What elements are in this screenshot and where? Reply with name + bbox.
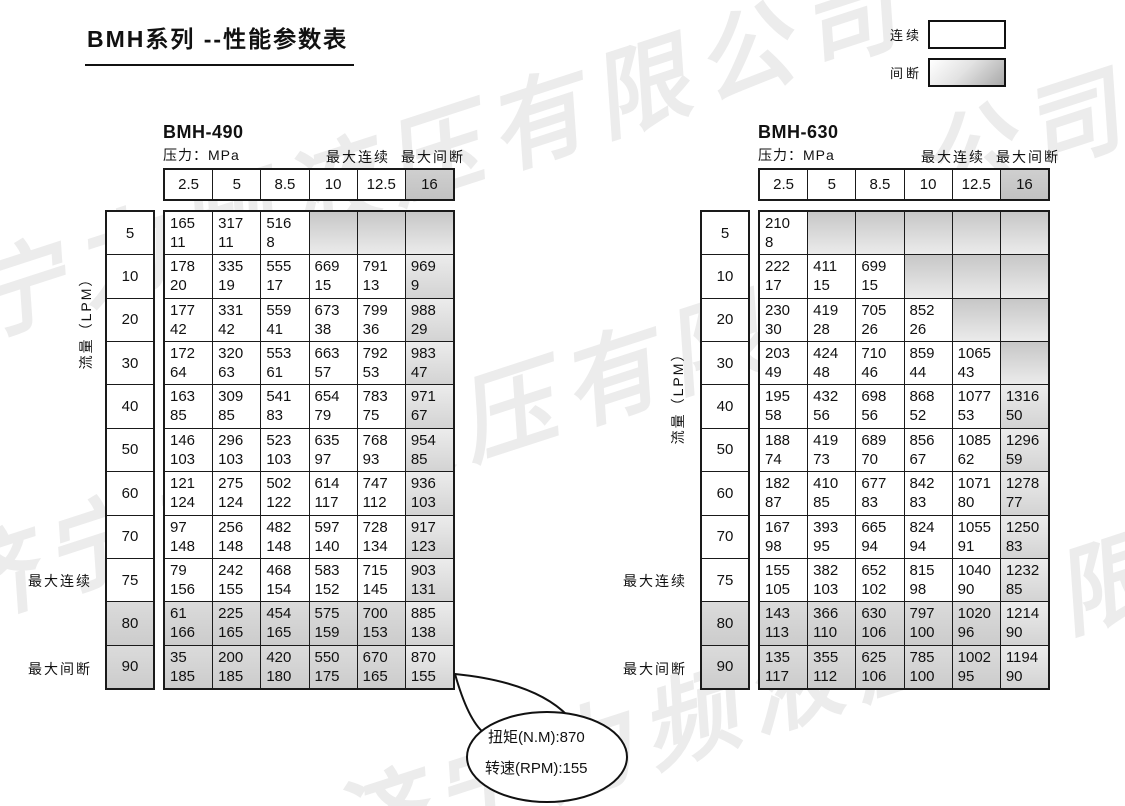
cell-BMH-490-10lpm-10mpa: 66915: [310, 255, 357, 297]
cell-BMH-630-30lpm-12.5mpa: 106543: [953, 342, 1000, 384]
cell-BMH-490-40lpm-16mpa: 97167: [406, 385, 453, 427]
torque-value: 988: [411, 301, 453, 320]
speed-value: 70: [861, 450, 903, 469]
speed-value: 100: [910, 623, 952, 642]
cell-BMH-630-40lpm-10mpa: 86852: [905, 385, 952, 427]
speed-value: 85: [170, 406, 212, 425]
torque-value: 859: [910, 344, 952, 363]
speed-value: 106: [861, 623, 903, 642]
torque-value: 785: [910, 648, 952, 667]
legend-continuous-label: 连续: [890, 25, 928, 44]
torque-value: 1071: [958, 474, 1000, 493]
cell-BMH-630-30lpm-5mpa: 42448: [808, 342, 855, 384]
cell-BMH-630-80lpm-16mpa: 121490: [1001, 602, 1048, 644]
torque-value: 1055: [958, 518, 1000, 537]
legend-continuous-swatch: [928, 20, 1006, 49]
speed-value: 145: [363, 580, 405, 599]
cell-BMH-630-5lpm-12.5mpa: [953, 212, 1000, 254]
torque-value: 583: [315, 561, 357, 580]
torque-value: 1296: [1006, 431, 1048, 450]
cell-BMH-490-50lpm-5mpa: 296103: [213, 429, 260, 471]
torque-value: 121: [170, 474, 212, 493]
cell-BMH-490-70lpm-16mpa: 917123: [406, 516, 453, 558]
cell-BMH-630-10lpm-2.5mpa: 22217: [760, 255, 807, 297]
cell-BMH-490-5lpm-8.5mpa: 5168: [261, 212, 308, 254]
speed-value: 103: [218, 450, 260, 469]
callout-speed-text: 转速(RPM):155: [485, 757, 588, 778]
torque-value: 167: [765, 518, 807, 537]
speed-value: 44: [910, 363, 952, 382]
speed-value: 166: [170, 623, 212, 642]
speed-value: 47: [411, 363, 453, 382]
cell-BMH-490-90lpm-8.5mpa: 420180: [261, 646, 308, 688]
speed-value: 50: [1006, 406, 1048, 425]
speed-value: 79: [315, 406, 357, 425]
torque-value: 1065: [958, 344, 1000, 363]
torque-value: 225: [218, 604, 260, 623]
cell-BMH-630-10lpm-8.5mpa: 69915: [856, 255, 903, 297]
speed-value: 83: [861, 493, 903, 512]
cell-BMH-490-80lpm-2.5mpa: 61166: [165, 602, 212, 644]
torque-value: 155: [765, 561, 807, 580]
torque-value: 172: [170, 344, 212, 363]
cell-BMH-630-60lpm-10mpa: 84283: [905, 472, 952, 514]
cell-BMH-490-80lpm-16mpa: 885138: [406, 602, 453, 644]
cell-BMH-490-60lpm-10mpa: 614117: [310, 472, 357, 514]
speed-value: 175: [315, 667, 357, 686]
torque-value: 555: [266, 257, 308, 276]
speed-value: 148: [170, 537, 212, 556]
torque-value: 516: [266, 214, 308, 233]
torque-value: 177: [170, 301, 212, 320]
torque-value: 61: [170, 604, 212, 623]
torque-value: 747: [363, 474, 405, 493]
speed-value: 93: [363, 450, 405, 469]
speed-value: 98: [765, 537, 807, 556]
torque-value: 468: [266, 561, 308, 580]
pressure-header-16: 16: [406, 170, 453, 199]
flow-column: 510203040506070758090: [700, 210, 750, 690]
cell-BMH-490-5lpm-2.5mpa: 16511: [165, 212, 212, 254]
speed-value: 17: [266, 276, 308, 295]
speed-value: 28: [813, 320, 855, 339]
speed-value: 152: [315, 580, 357, 599]
cell-BMH-630-90lpm-16mpa: 119490: [1001, 646, 1048, 688]
torque-value: 559: [266, 301, 308, 320]
cell-BMH-490-70lpm-12.5mpa: 728134: [358, 516, 405, 558]
cell-BMH-490-20lpm-5mpa: 33142: [213, 299, 260, 341]
cell-BMH-490-5lpm-12.5mpa: [358, 212, 405, 254]
cell-BMH-630-60lpm-2.5mpa: 18287: [760, 472, 807, 514]
speed-value: 91: [958, 537, 1000, 556]
cell-BMH-490-90lpm-2.5mpa: 35185: [165, 646, 212, 688]
cell-BMH-490-75lpm-16mpa: 903131: [406, 559, 453, 601]
cell-BMH-490-50lpm-12.5mpa: 76893: [358, 429, 405, 471]
torque-value: 917: [411, 518, 453, 537]
speed-value: 58: [765, 406, 807, 425]
cell-BMH-490-75lpm-10mpa: 583152: [310, 559, 357, 601]
pressure-header-8.5: 8.5: [856, 170, 903, 199]
speed-value: 90: [1006, 667, 1048, 686]
table-bmh-630: BMH-630 压力：MPa 最大连续 最大间断 2.558.51012.516…: [700, 122, 1120, 697]
cell-BMH-630-10lpm-12.5mpa: [953, 255, 1000, 297]
flow-header-70: 70: [702, 516, 748, 558]
torque-value: 143: [765, 604, 807, 623]
cell-BMH-490-80lpm-5mpa: 225165: [213, 602, 260, 644]
flow-header-40: 40: [702, 385, 748, 427]
speed-value: 95: [813, 537, 855, 556]
cell-BMH-490-30lpm-2.5mpa: 17264: [165, 342, 212, 384]
cell-BMH-490-60lpm-12.5mpa: 747112: [358, 472, 405, 514]
speed-value: 56: [813, 406, 855, 425]
speed-value: 95: [958, 667, 1000, 686]
legend-intermittent-swatch: [928, 58, 1006, 87]
flow-column: 510203040506070758090: [105, 210, 155, 690]
torque-value: 200: [218, 648, 260, 667]
max-intermittent-column-label: 最大间断: [996, 147, 1060, 167]
torque-value: 705: [861, 301, 903, 320]
cell-BMH-490-30lpm-16mpa: 98347: [406, 342, 453, 384]
torque-value: 792: [363, 344, 405, 363]
speed-value: 113: [765, 623, 807, 642]
pressure-header-row: 2.558.51012.516: [758, 168, 1050, 201]
torque-value: 783: [363, 387, 405, 406]
cell-BMH-630-20lpm-12.5mpa: [953, 299, 1000, 341]
torque-value: 222: [765, 257, 807, 276]
flow-header-90: 90: [107, 646, 153, 688]
pressure-header-8.5: 8.5: [261, 170, 308, 199]
max-continuous-column-label: 最大连续: [326, 147, 390, 167]
cell-BMH-490-50lpm-8.5mpa: 523103: [261, 429, 308, 471]
flow-header-5: 5: [107, 212, 153, 254]
speed-value: 73: [813, 450, 855, 469]
speed-value: 138: [411, 623, 453, 642]
torque-value: 203: [765, 344, 807, 363]
cell-BMH-630-10lpm-16mpa: [1001, 255, 1048, 297]
cell-BMH-490-5lpm-10mpa: [310, 212, 357, 254]
torque-value: 482: [266, 518, 308, 537]
speed-value: 98: [910, 580, 952, 599]
speed-value: 96: [958, 623, 1000, 642]
speed-value: 29: [411, 320, 453, 339]
cell-BMH-630-20lpm-5mpa: 41928: [808, 299, 855, 341]
speed-value: 49: [765, 363, 807, 382]
cell-BMH-490-70lpm-8.5mpa: 482148: [261, 516, 308, 558]
speed-value: 159: [315, 623, 357, 642]
pressure-header-10: 10: [310, 170, 357, 199]
flow-header-75: 75: [702, 559, 748, 601]
torque-value: 165: [170, 214, 212, 233]
speed-value: 102: [861, 580, 903, 599]
cell-BMH-630-5lpm-16mpa: [1001, 212, 1048, 254]
torque-value: 799: [363, 301, 405, 320]
cell-BMH-490-75lpm-2.5mpa: 79156: [165, 559, 212, 601]
cell-BMH-490-10lpm-2.5mpa: 17820: [165, 255, 212, 297]
cell-BMH-630-40lpm-8.5mpa: 69856: [856, 385, 903, 427]
torque-value: 1278: [1006, 474, 1048, 493]
speed-value: 26: [910, 320, 952, 339]
cell-BMH-490-80lpm-10mpa: 575159: [310, 602, 357, 644]
speed-value: 148: [266, 537, 308, 556]
torque-value: 230: [765, 301, 807, 320]
cell-BMH-630-75lpm-12.5mpa: 104090: [953, 559, 1000, 601]
cell-BMH-630-60lpm-12.5mpa: 107180: [953, 472, 1000, 514]
torque-value: 673: [315, 301, 357, 320]
speed-value: 41: [266, 320, 308, 339]
torque-value: 971: [411, 387, 453, 406]
speed-value: 124: [218, 493, 260, 512]
flow-header-75: 75: [107, 559, 153, 601]
torque-value: 1194: [1006, 648, 1048, 667]
cell-BMH-490-60lpm-16mpa: 936103: [406, 472, 453, 514]
cell-BMH-490-70lpm-2.5mpa: 97148: [165, 516, 212, 558]
cell-BMH-630-60lpm-5mpa: 41085: [808, 472, 855, 514]
speed-value: 43: [958, 363, 1000, 382]
cell-BMH-630-90lpm-12.5mpa: 100295: [953, 646, 1000, 688]
cell-BMH-630-40lpm-12.5mpa: 107753: [953, 385, 1000, 427]
torque-value: 625: [861, 648, 903, 667]
torque-value: 824: [910, 518, 952, 537]
speed-value: 103: [266, 450, 308, 469]
cell-BMH-490-80lpm-12.5mpa: 700153: [358, 602, 405, 644]
cell-BMH-490-50lpm-2.5mpa: 146103: [165, 429, 212, 471]
speed-value: 83: [1006, 537, 1048, 556]
cell-BMH-630-40lpm-16mpa: 131650: [1001, 385, 1048, 427]
cell-BMH-630-75lpm-5mpa: 382103: [808, 559, 855, 601]
speed-value: 90: [1006, 623, 1048, 642]
cell-BMH-630-70lpm-10mpa: 82494: [905, 516, 952, 558]
cell-BMH-630-30lpm-8.5mpa: 71046: [856, 342, 903, 384]
torque-value: 553: [266, 344, 308, 363]
cell-BMH-630-20lpm-10mpa: 85226: [905, 299, 952, 341]
cell-BMH-490-30lpm-12.5mpa: 79253: [358, 342, 405, 384]
torque-value: 411: [813, 257, 855, 276]
torque-value: 195: [765, 387, 807, 406]
speed-value: 30: [765, 320, 807, 339]
speed-value: 57: [315, 363, 357, 382]
cell-BMH-490-50lpm-16mpa: 95485: [406, 429, 453, 471]
torque-value: 597: [315, 518, 357, 537]
flow-header-10: 10: [702, 255, 748, 297]
torque-value: 97: [170, 518, 212, 537]
torque-value: 550: [315, 648, 357, 667]
flow-header-80: 80: [702, 602, 748, 644]
flow-header-80: 80: [107, 602, 153, 644]
speed-value: 85: [1006, 580, 1048, 599]
cell-BMH-630-90lpm-2.5mpa: 135117: [760, 646, 807, 688]
torque-value: 1002: [958, 648, 1000, 667]
cell-BMH-490-70lpm-10mpa: 597140: [310, 516, 357, 558]
cell-BMH-630-70lpm-2.5mpa: 16798: [760, 516, 807, 558]
speed-value: 165: [266, 623, 308, 642]
speed-value: 185: [218, 667, 260, 686]
flow-header-5: 5: [702, 212, 748, 254]
max-intermittent-column-label: 最大间断: [401, 147, 465, 167]
speed-value: 9: [411, 276, 453, 295]
cell-BMH-490-60lpm-8.5mpa: 502122: [261, 472, 308, 514]
speed-value: 83: [910, 493, 952, 512]
torque-value: 35: [170, 648, 212, 667]
torque-value: 382: [813, 561, 855, 580]
speed-value: 148: [218, 537, 260, 556]
torque-value: 331: [218, 301, 260, 320]
speed-value: 105: [765, 580, 807, 599]
torque-value: 663: [315, 344, 357, 363]
max-continuous-column-label: 最大连续: [921, 147, 985, 167]
pressure-unit-label: 压力：MPa: [163, 145, 240, 165]
speed-value: 53: [958, 406, 1000, 425]
speed-value: 87: [765, 493, 807, 512]
cell-BMH-630-75lpm-2.5mpa: 155105: [760, 559, 807, 601]
cell-BMH-630-50lpm-5mpa: 41973: [808, 429, 855, 471]
flow-header-90: 90: [702, 646, 748, 688]
torque-value: 856: [910, 431, 952, 450]
cell-BMH-490-90lpm-12.5mpa: 670165: [358, 646, 405, 688]
speed-value: 117: [315, 493, 357, 512]
speed-value: 17: [765, 276, 807, 295]
flow-header-20: 20: [702, 299, 748, 341]
cell-BMH-630-70lpm-8.5mpa: 66594: [856, 516, 903, 558]
performance-sheet-page: 宁力频液压有限公司济宁力频液压有限公司济宁力频液压有限公司公司 BMH系列 --…: [0, 0, 1125, 806]
speed-value: 74: [765, 450, 807, 469]
speed-value: 56: [861, 406, 903, 425]
speed-value: 123: [411, 537, 453, 556]
cell-BMH-630-10lpm-5mpa: 41115: [808, 255, 855, 297]
cell-BMH-630-60lpm-8.5mpa: 67783: [856, 472, 903, 514]
cell-BMH-490-40lpm-8.5mpa: 54183: [261, 385, 308, 427]
torque-value: 700: [363, 604, 405, 623]
cell-BMH-630-90lpm-5mpa: 355112: [808, 646, 855, 688]
torque-value: 969: [411, 257, 453, 276]
torque-value: 715: [363, 561, 405, 580]
cell-BMH-630-75lpm-10mpa: 81598: [905, 559, 952, 601]
cell-BMH-630-80lpm-5mpa: 366110: [808, 602, 855, 644]
flow-header-10: 10: [107, 255, 153, 297]
cell-BMH-630-50lpm-12.5mpa: 108562: [953, 429, 1000, 471]
torque-value: 710: [861, 344, 903, 363]
torque-value: 670: [363, 648, 405, 667]
cell-BMH-490-40lpm-5mpa: 30985: [213, 385, 260, 427]
speed-value: 8: [765, 233, 807, 252]
speed-value: 59: [1006, 450, 1048, 469]
torque-value: 669: [315, 257, 357, 276]
torque-value: 614: [315, 474, 357, 493]
torque-value: 320: [218, 344, 260, 363]
torque-value: 677: [861, 474, 903, 493]
flow-header-50: 50: [702, 429, 748, 471]
speed-value: 106: [861, 667, 903, 686]
cell-BMH-630-70lpm-12.5mpa: 105591: [953, 516, 1000, 558]
speed-value: 15: [315, 276, 357, 295]
speed-value: 61: [266, 363, 308, 382]
pressure-header-12.5: 12.5: [358, 170, 405, 199]
torque-value: 178: [170, 257, 212, 276]
torque-value: 698: [861, 387, 903, 406]
cell-BMH-630-70lpm-16mpa: 125083: [1001, 516, 1048, 558]
speed-value: 117: [765, 667, 807, 686]
speed-value: 165: [218, 623, 260, 642]
flow-header-50: 50: [107, 429, 153, 471]
flow-axis-label: 流量（LPM）: [76, 255, 96, 385]
torque-value: 815: [910, 561, 952, 580]
cell-BMH-630-75lpm-8.5mpa: 652102: [856, 559, 903, 601]
cell-BMH-490-10lpm-8.5mpa: 55517: [261, 255, 308, 297]
torque-value: 868: [910, 387, 952, 406]
torque-value: 797: [910, 604, 952, 623]
torque-value: 432: [813, 387, 855, 406]
speed-value: 140: [315, 537, 357, 556]
cell-BMH-490-70lpm-5mpa: 256148: [213, 516, 260, 558]
cell-BMH-490-20lpm-2.5mpa: 17742: [165, 299, 212, 341]
cell-BMH-630-5lpm-2.5mpa: 2108: [760, 212, 807, 254]
cell-BMH-490-75lpm-8.5mpa: 468154: [261, 559, 308, 601]
torque-value: 523: [266, 431, 308, 450]
torque-value: 575: [315, 604, 357, 623]
cell-BMH-490-30lpm-5mpa: 32063: [213, 342, 260, 384]
torque-value: 163: [170, 387, 212, 406]
speed-value: 38: [315, 320, 357, 339]
cell-BMH-490-60lpm-2.5mpa: 121124: [165, 472, 212, 514]
speed-value: 11: [170, 233, 212, 252]
torque-value: 1250: [1006, 518, 1048, 537]
cell-BMH-490-40lpm-10mpa: 65479: [310, 385, 357, 427]
flow-header-60: 60: [107, 472, 153, 514]
pressure-header-2.5: 2.5: [165, 170, 212, 199]
cell-BMH-490-40lpm-2.5mpa: 16385: [165, 385, 212, 427]
speed-value: 53: [363, 363, 405, 382]
cell-BMH-490-90lpm-10mpa: 550175: [310, 646, 357, 688]
torque-value: 419: [813, 301, 855, 320]
cell-BMH-630-5lpm-10mpa: [905, 212, 952, 254]
cell-BMH-630-90lpm-10mpa: 785100: [905, 646, 952, 688]
speed-value: 83: [266, 406, 308, 425]
pressure-header-5: 5: [808, 170, 855, 199]
flow-header-40: 40: [107, 385, 153, 427]
flow-header-20: 20: [107, 299, 153, 341]
torque-value: 791: [363, 257, 405, 276]
torque-value: 1232: [1006, 561, 1048, 580]
speed-value: 155: [218, 580, 260, 599]
max-continuous-row-label: 最大连续: [28, 571, 92, 591]
torque-value: 355: [813, 648, 855, 667]
speed-value: 85: [813, 493, 855, 512]
speed-value: 185: [170, 667, 212, 686]
torque-value: 852: [910, 301, 952, 320]
cell-BMH-490-20lpm-10mpa: 67338: [310, 299, 357, 341]
cell-BMH-630-60lpm-16mpa: 127877: [1001, 472, 1048, 514]
cell-BMH-630-30lpm-16mpa: [1001, 342, 1048, 384]
cell-BMH-490-20lpm-12.5mpa: 79936: [358, 299, 405, 341]
pressure-unit-label: 压力：MPa: [758, 145, 835, 165]
flow-header-70: 70: [107, 516, 153, 558]
speed-value: 75: [363, 406, 405, 425]
speed-value: 131: [411, 580, 453, 599]
cell-BMH-490-20lpm-8.5mpa: 55941: [261, 299, 308, 341]
speed-value: 103: [411, 493, 453, 512]
torque-value: 654: [315, 387, 357, 406]
speed-value: 64: [170, 363, 212, 382]
torque-value: 1040: [958, 561, 1000, 580]
torque-value: 903: [411, 561, 453, 580]
torque-value: 182: [765, 474, 807, 493]
torque-value: 424: [813, 344, 855, 363]
legend-intermittent-row: 间断: [890, 58, 1006, 87]
pressure-header-16: 16: [1001, 170, 1048, 199]
torque-value: 256: [218, 518, 260, 537]
cell-BMH-630-75lpm-16mpa: 123285: [1001, 559, 1048, 601]
speed-value: 36: [363, 320, 405, 339]
cell-BMH-490-90lpm-5mpa: 200185: [213, 646, 260, 688]
